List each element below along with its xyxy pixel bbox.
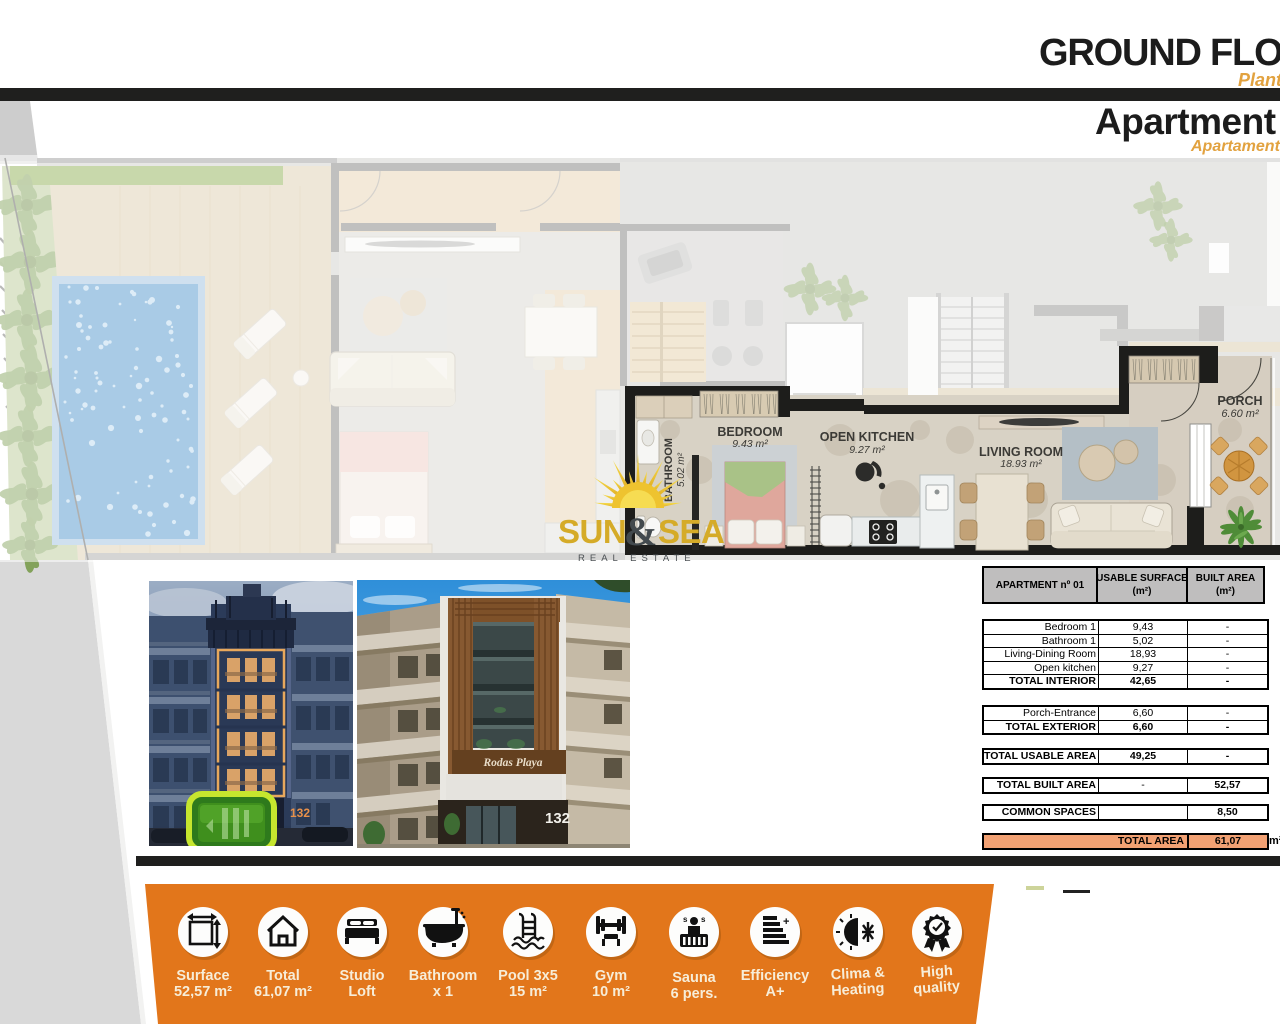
svg-text:132: 132 xyxy=(545,810,570,827)
svg-text:18.93 m²: 18.93 m² xyxy=(1000,458,1042,470)
svg-text:OPEN KITCHEN: OPEN KITCHEN xyxy=(820,430,914,444)
svg-text:9.43 m²: 9.43 m² xyxy=(732,438,768,450)
svg-text:5.02 m²: 5.02 m² xyxy=(676,452,687,487)
svg-text:s: s xyxy=(701,915,706,924)
svg-text:Gym: Gym xyxy=(595,968,627,984)
svg-text:10 m²: 10 m² xyxy=(592,984,630,1000)
svg-text:Bathroom: Bathroom xyxy=(409,968,477,984)
svg-text:Heating: Heating xyxy=(831,981,885,1000)
svg-text:6 pers.: 6 pers. xyxy=(671,986,718,1002)
svg-text:61,07 m²: 61,07 m² xyxy=(254,984,312,1000)
svg-text:15 m²: 15 m² xyxy=(509,984,547,1000)
svg-text:Pool 3x5: Pool 3x5 xyxy=(498,968,558,984)
svg-text:&: & xyxy=(624,509,657,554)
svg-text:Loft: Loft xyxy=(348,984,376,1000)
svg-text:Total: Total xyxy=(266,968,300,984)
svg-text:+: + xyxy=(783,916,789,928)
svg-text:Efficiency: Efficiency xyxy=(741,968,810,984)
svg-text:132: 132 xyxy=(290,806,310,820)
svg-text:6.60 m²: 6.60 m² xyxy=(1221,408,1259,420)
svg-text:Rodas Playa: Rodas Playa xyxy=(482,757,542,769)
svg-text:s: s xyxy=(683,915,688,924)
svg-text:Surface: Surface xyxy=(176,968,229,984)
svg-text:Studio: Studio xyxy=(339,968,384,984)
svg-text:BATHROOM: BATHROOM xyxy=(663,438,675,502)
svg-text:REAL ESTATE: REAL ESTATE xyxy=(578,553,696,564)
svg-text:LIVING ROOM: LIVING ROOM xyxy=(979,445,1063,459)
svg-text:52,57 m²: 52,57 m² xyxy=(174,984,232,1000)
svg-text:BEDROOM: BEDROOM xyxy=(717,425,782,439)
svg-text:Sauna: Sauna xyxy=(672,970,716,986)
svg-text:9.27 m²: 9.27 m² xyxy=(849,444,885,456)
svg-text:SUN: SUN xyxy=(558,513,626,550)
svg-text:PORCH: PORCH xyxy=(1217,394,1262,408)
svg-text:x 1: x 1 xyxy=(433,984,453,1000)
svg-text:SEA: SEA xyxy=(658,513,724,550)
svg-text:A+: A+ xyxy=(766,984,785,1000)
svg-text:quality: quality xyxy=(913,978,961,997)
